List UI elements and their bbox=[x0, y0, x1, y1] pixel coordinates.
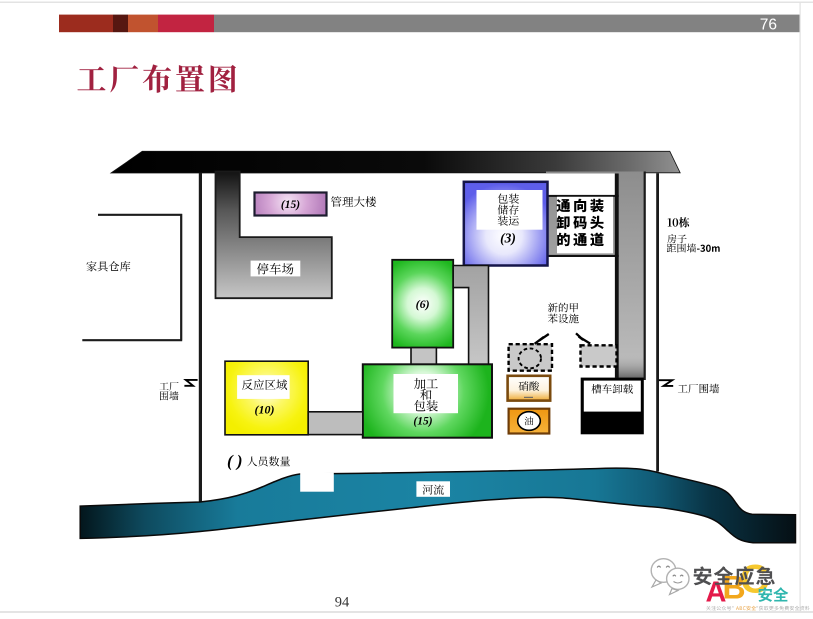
svg-text:( ): ( ) bbox=[227, 452, 243, 471]
svg-text:(15): (15) bbox=[281, 199, 300, 211]
svg-text:94: 94 bbox=[335, 594, 350, 610]
svg-text:76: 76 bbox=[760, 17, 777, 34]
svg-text:(10): (10) bbox=[255, 402, 275, 416]
svg-text:(15): (15) bbox=[413, 416, 432, 428]
svg-text:(3): (3) bbox=[500, 231, 516, 246]
svg-text:(6): (6) bbox=[416, 297, 430, 311]
